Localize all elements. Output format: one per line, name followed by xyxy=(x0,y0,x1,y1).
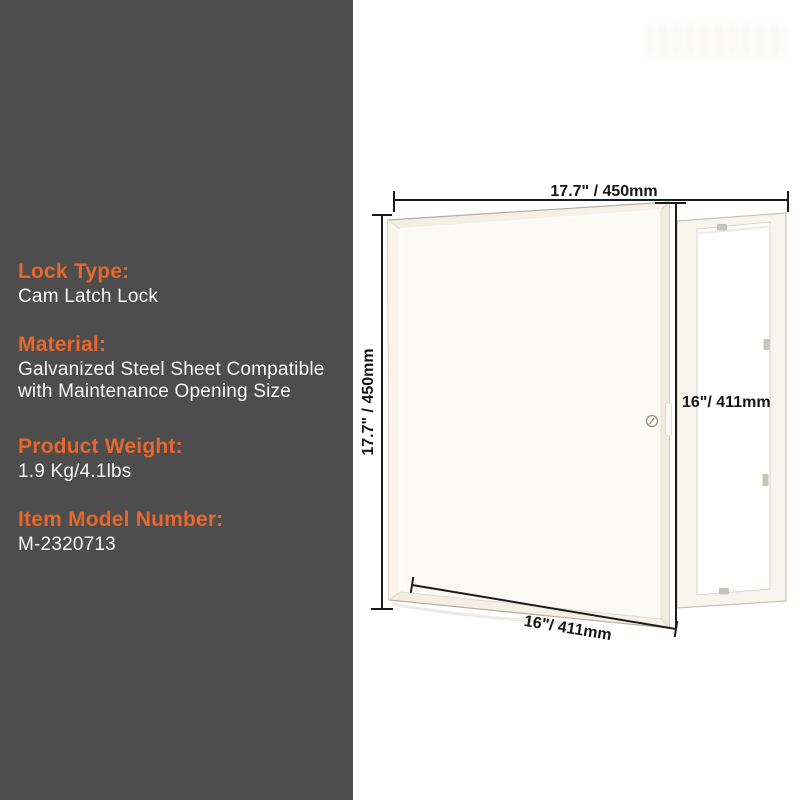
door-face xyxy=(400,210,661,619)
cam-latch-lock-icon xyxy=(647,416,658,427)
watermark xyxy=(644,24,788,58)
spec-panel: Lock Type: Cam Latch Lock Material: Galv… xyxy=(0,0,353,800)
door-left-side-face xyxy=(388,220,400,600)
dim-top-label: 17.7" / 450mm xyxy=(550,183,657,200)
spec-value: 1.9 Kg/4.1lbs xyxy=(18,461,336,483)
spec-value: Cam Latch Lock xyxy=(18,286,336,308)
spec-block-material: Material: Galvanized Steel Sheet Compati… xyxy=(18,332,336,403)
spec-value: Galvanized Steel Sheet Compatible with M… xyxy=(18,359,336,403)
dim-left-label: 17.7" / 450mm xyxy=(360,348,377,455)
spec-label: Lock Type: xyxy=(18,259,336,285)
frame-clip xyxy=(763,474,769,486)
frame-clip xyxy=(719,588,729,595)
dim-right-label: 16"/ 411mm xyxy=(682,394,771,411)
access-door-panel xyxy=(388,202,672,628)
spec-block-weight: Product Weight: 1.9 Kg/4.1lbs xyxy=(18,434,336,483)
frame-clip xyxy=(717,224,727,231)
frame-clip xyxy=(764,339,770,350)
latch-notch xyxy=(666,403,672,436)
spec-label: Item Model Number: xyxy=(18,507,336,533)
spec-value: M-2320713 xyxy=(18,534,336,556)
spec-block-lock-type: Lock Type: Cam Latch Lock xyxy=(18,259,336,308)
spec-label: Material: xyxy=(18,332,336,358)
spec-block-model-number: Item Model Number: M-2320713 xyxy=(18,507,336,556)
spec-label: Product Weight: xyxy=(18,434,336,460)
